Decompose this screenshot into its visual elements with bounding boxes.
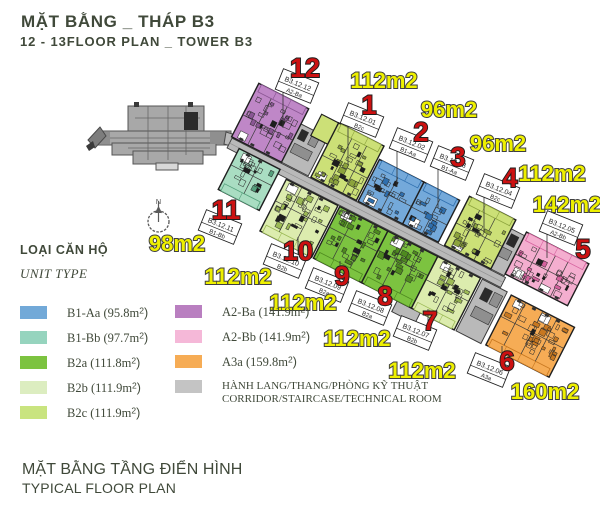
svg-text:UNIT TYPE: UNIT TYPE [20, 266, 87, 281]
svg-text:96m2: 96m2 [470, 131, 526, 156]
svg-text:142m2: 142m2 [533, 192, 600, 217]
svg-text:10: 10 [283, 236, 313, 266]
svg-text:HÀNH LANG/THANG/PHÒNG KỸ THUẬT: HÀNH LANG/THANG/PHÒNG KỸ THUẬT [222, 380, 428, 392]
svg-text:A2-Bb (141.9m2): A2-Bb (141.9m2) [222, 330, 310, 345]
svg-text:5: 5 [575, 234, 590, 264]
svg-text:CORRIDOR/STAIRCASE/TECHNICAL R: CORRIDOR/STAIRCASE/TECHNICAL ROOM [222, 393, 442, 405]
svg-text:B2b (111.9m2): B2b (111.9m2) [67, 381, 141, 396]
svg-text:9: 9 [334, 261, 349, 291]
svg-text:N: N [156, 197, 161, 206]
svg-text:112m2: 112m2 [350, 68, 417, 93]
svg-text:B2c (111.9m2): B2c (111.9m2) [67, 406, 140, 421]
svg-text:112m2: 112m2 [204, 264, 271, 289]
svg-text:A3a (159.8m2): A3a (159.8m2) [222, 355, 297, 370]
svg-text:4: 4 [502, 163, 517, 193]
svg-text:11: 11 [212, 195, 241, 225]
svg-text:12: 12 [290, 53, 320, 83]
svg-text:160m2: 160m2 [511, 379, 580, 404]
svg-text:112m2: 112m2 [323, 326, 390, 351]
svg-text:12 - 13FLOOR PLAN _ TOWER B3: 12 - 13FLOOR PLAN _ TOWER B3 [20, 34, 253, 49]
svg-text:B1-Aa (95.8m2): B1-Aa (95.8m2) [67, 306, 148, 321]
svg-text:7: 7 [422, 306, 437, 336]
svg-text:TYPICAL FLOOR PLAN: TYPICAL FLOOR PLAN [22, 480, 176, 496]
svg-text:6: 6 [499, 346, 514, 376]
svg-text:B2a (111.8m2): B2a (111.8m2) [67, 356, 140, 371]
svg-text:MẶT BẰNG TẦNG ĐIỂN HÌNH: MẶT BẰNG TẦNG ĐIỂN HÌNH [22, 459, 242, 478]
svg-text:96m2: 96m2 [421, 97, 477, 122]
svg-text:8: 8 [377, 281, 392, 311]
svg-text:3: 3 [450, 142, 465, 172]
svg-text:98m2: 98m2 [149, 231, 205, 256]
svg-text:B1-Bb (97.7m2): B1-Bb (97.7m2) [67, 331, 148, 346]
svg-text:A2-Ba (141.9m2): A2-Ba (141.9m2) [222, 305, 309, 320]
svg-text:LOẠI CĂN HỘ: LOẠI CĂN HỘ [20, 242, 108, 257]
svg-text:1: 1 [361, 90, 376, 120]
svg-text:MẶT BẰNG _ THÁP B3: MẶT BẰNG _ THÁP B3 [21, 12, 215, 31]
svg-text:112m2: 112m2 [518, 161, 585, 186]
